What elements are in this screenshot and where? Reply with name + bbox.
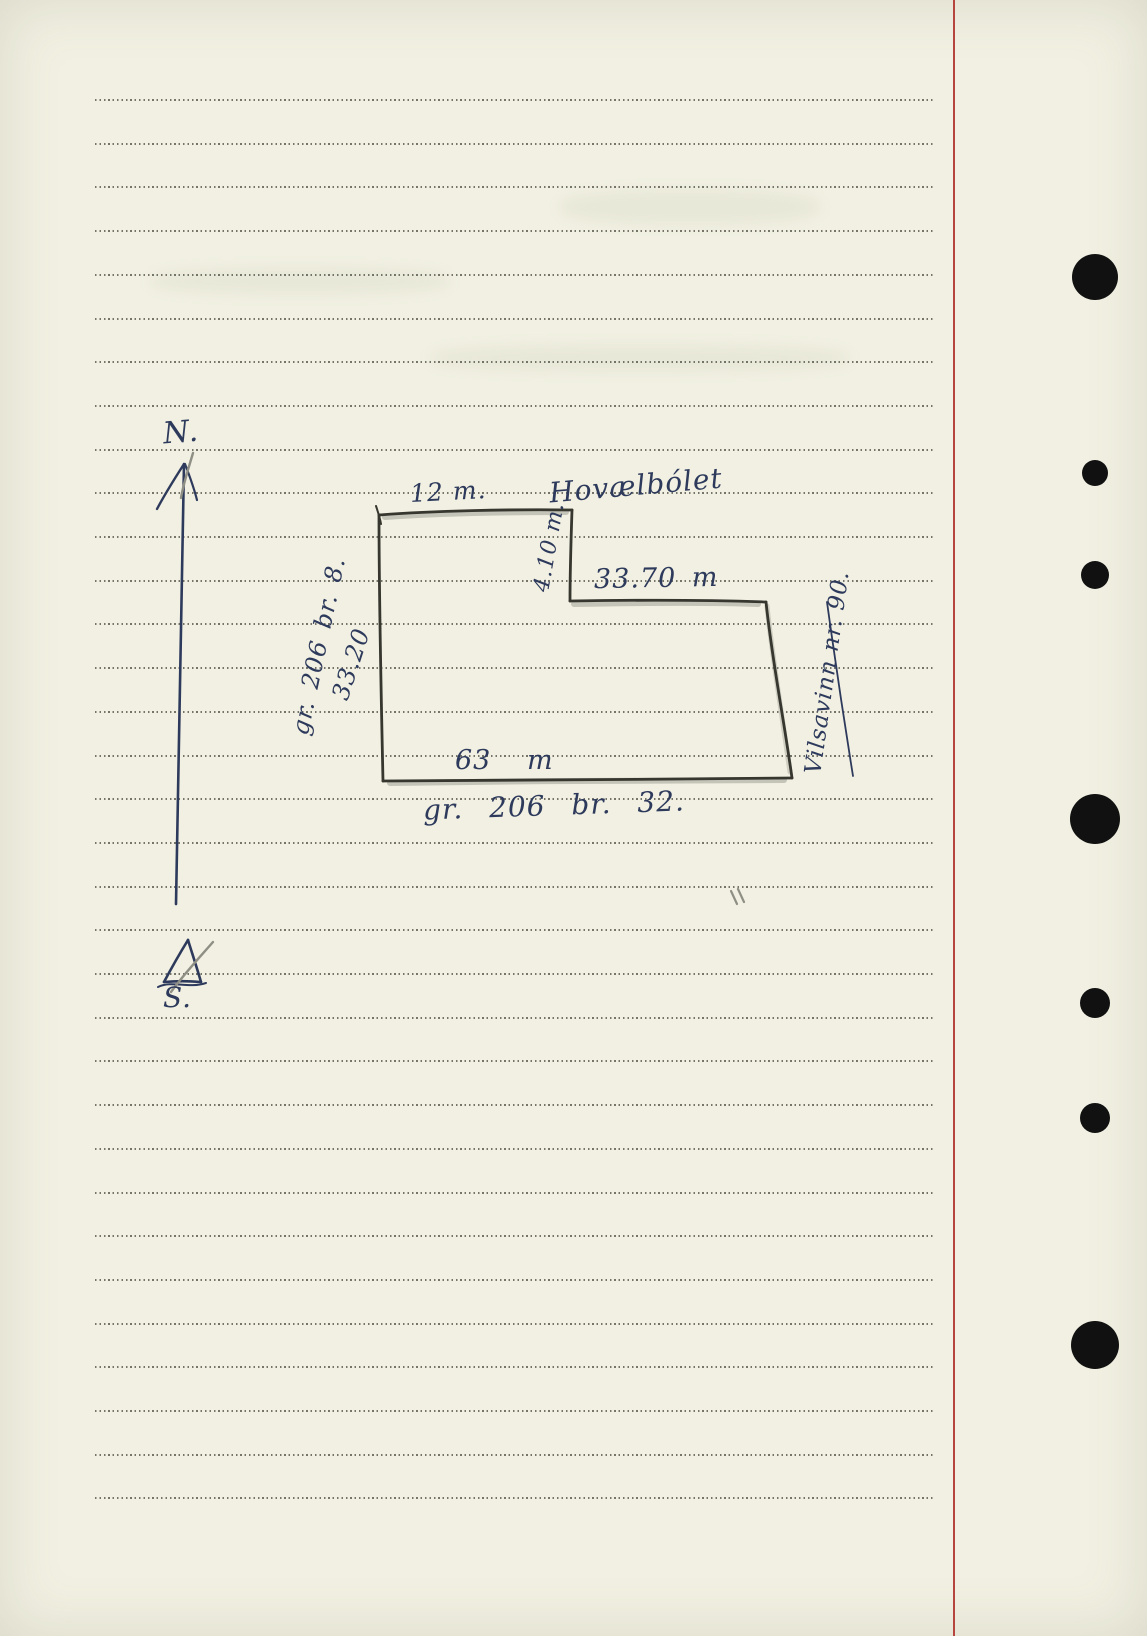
top-width-label: 12 m.: [409, 477, 487, 506]
plot-outline: [376, 506, 792, 783]
north-arrow: [157, 453, 213, 992]
compass-south-label: S.: [163, 984, 192, 1012]
upper-right-width-label: 33.70 m: [594, 564, 719, 593]
bottom-width-label: 63 m: [455, 747, 554, 774]
notebook-page: N. S. 12 m. Hovælbólet 4.10 m. 33.70 m 6…: [0, 0, 1147, 1636]
compass-north-label: N.: [162, 416, 200, 449]
pencil-tick-mark: [731, 889, 744, 904]
